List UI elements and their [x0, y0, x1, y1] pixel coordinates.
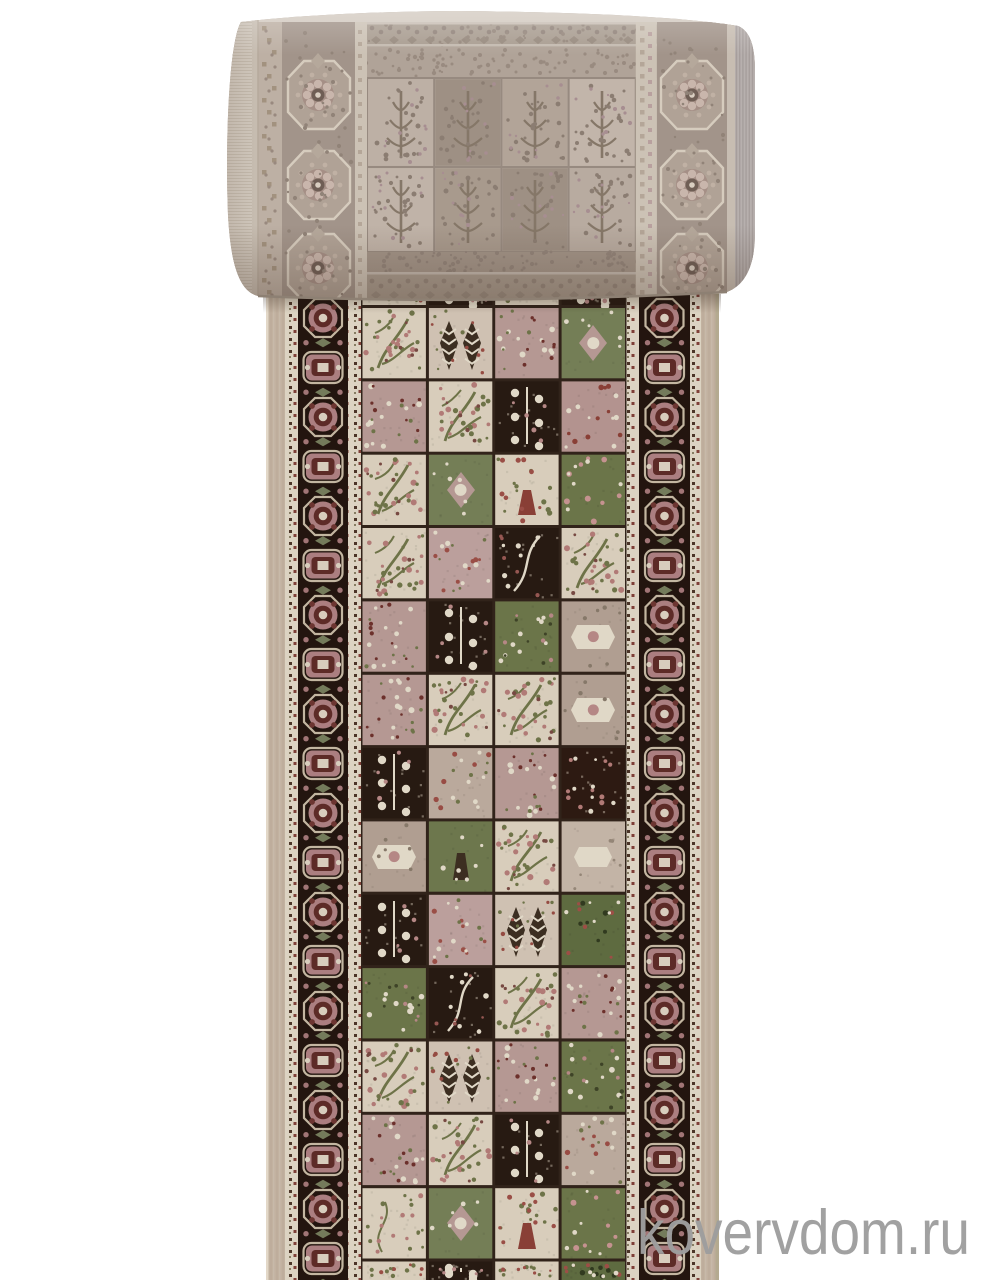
svg-text:kovervdom.ru: kovervdom.ru	[637, 1198, 970, 1268]
